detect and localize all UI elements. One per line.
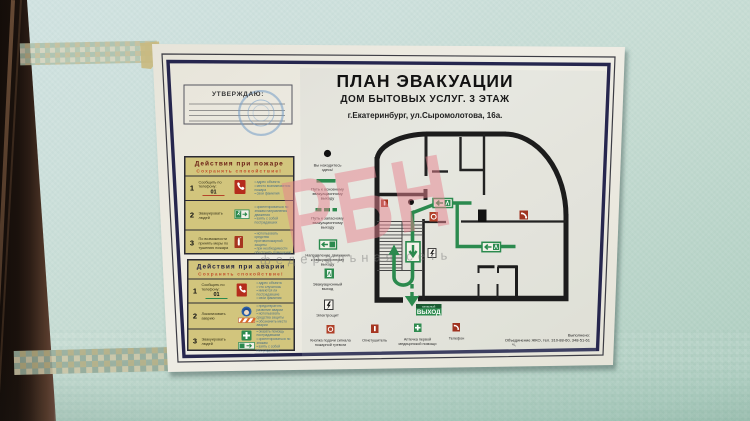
svg-text:ВЫХОД: ВЫХОД <box>417 309 441 316</box>
